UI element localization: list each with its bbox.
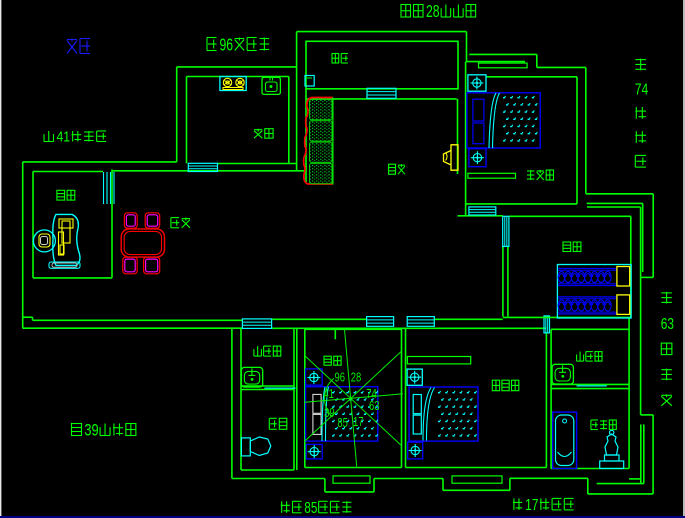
svg-text:39: 39 (324, 406, 335, 420)
svg-text:17: 17 (353, 415, 364, 429)
svg-text:74: 74 (635, 81, 649, 99)
svg-text:96: 96 (335, 371, 346, 385)
svg-text:63: 63 (661, 316, 674, 333)
svg-text:85: 85 (337, 416, 348, 430)
svg-text:17: 17 (525, 497, 539, 514)
svg-text:63: 63 (369, 399, 380, 413)
svg-text:28: 28 (426, 1, 440, 21)
svg-text:96: 96 (220, 35, 234, 55)
svg-text:28: 28 (351, 371, 362, 385)
svg-text:41: 41 (57, 130, 71, 146)
svg-text:41: 41 (323, 387, 334, 401)
svg-text:85: 85 (304, 500, 317, 517)
svg-text:39: 39 (84, 421, 98, 440)
